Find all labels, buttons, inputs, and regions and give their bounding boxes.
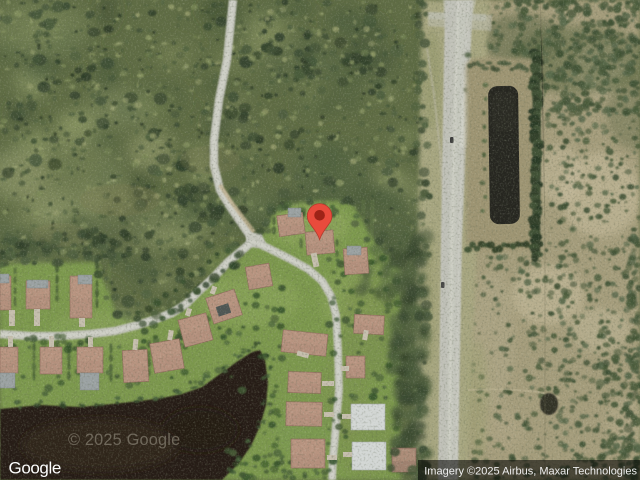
svg-text:Imagery ©2025 Airbus, Maxar Te: Imagery ©2025 Airbus, Maxar Technologies [424,466,637,478]
svg-text:© 2025 Google: © 2025 Google [68,431,180,449]
svg-text:Google: Google [9,459,61,478]
